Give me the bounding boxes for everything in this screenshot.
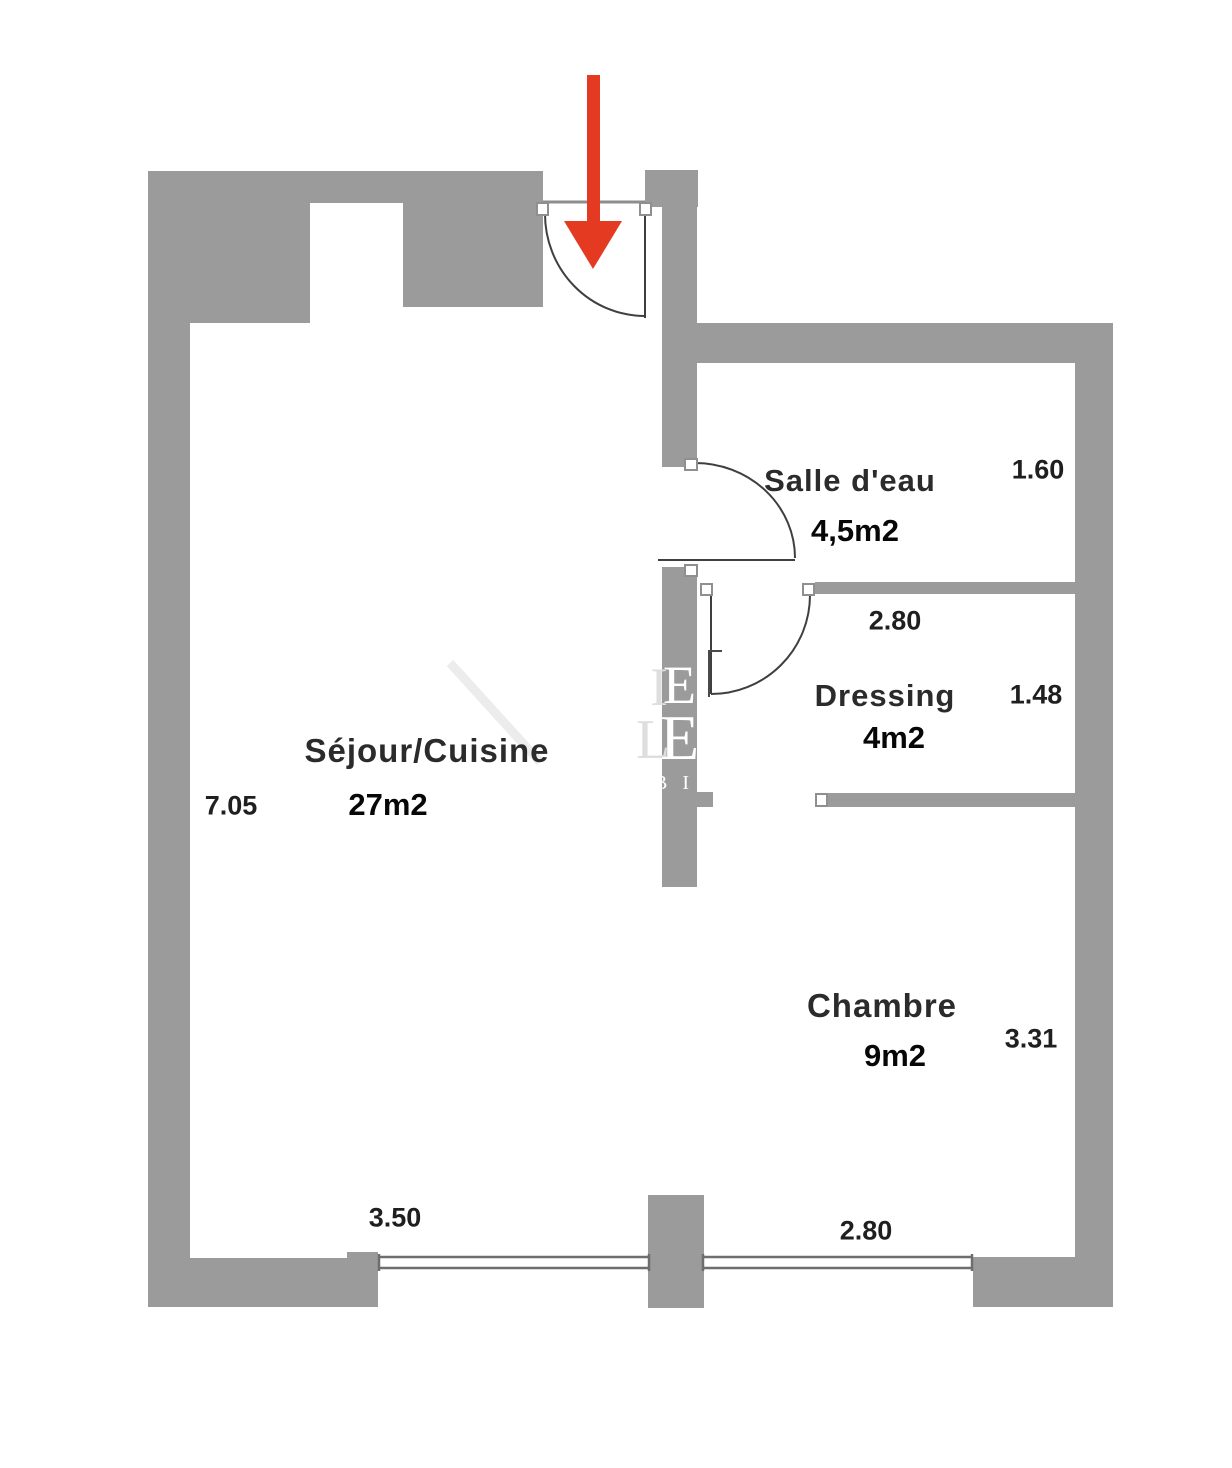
dressing-door-swing: [711, 595, 810, 694]
chambre-opening-jamb: [815, 793, 828, 807]
chambre-label: Chambre: [807, 987, 957, 1025]
entrance-left-jamb: [536, 202, 549, 216]
arrow-head: [564, 221, 622, 269]
sejour-window: [378, 1254, 650, 1271]
salle-deau-door-bottom-jamb: [684, 564, 698, 577]
floor-plan: I E L E B I Salle d'eau 1.60 4,5m2 2.80 …: [0, 0, 1232, 1468]
watermark-letter: E: [660, 706, 699, 770]
dressing-area: 4m2: [863, 720, 925, 756]
dressing-door-left-jamb: [700, 583, 713, 596]
watermark-small-text: B I: [654, 773, 694, 793]
chambre-window-dim: 2.80: [840, 1216, 893, 1247]
arrow-shaft: [587, 75, 600, 223]
sejour-label: Séjour/Cuisine: [304, 732, 549, 770]
sejour-dim: 7.05: [205, 791, 258, 822]
salle-deau-label: Salle d'eau: [764, 463, 936, 499]
dressing-dim: 1.48: [1010, 680, 1063, 711]
chambre-window: [702, 1254, 973, 1271]
entrance-arrow-icon: [564, 75, 622, 270]
dressing-label: Dressing: [815, 678, 956, 714]
chambre-area: 9m2: [864, 1038, 926, 1074]
chambre-dim: 3.31: [1005, 1024, 1058, 1055]
dressing-top-dim: 2.80: [869, 606, 922, 637]
sejour-window-dim: 3.50: [369, 1203, 422, 1234]
entrance-right-jamb: [639, 202, 652, 216]
sejour-area: 27m2: [348, 787, 427, 823]
salle-deau-area: 4,5m2: [811, 513, 899, 549]
dressing-door-right-jamb: [802, 583, 815, 596]
salle-deau-dim: 1.60: [1012, 455, 1065, 486]
salle-deau-door-top-jamb: [684, 458, 698, 471]
